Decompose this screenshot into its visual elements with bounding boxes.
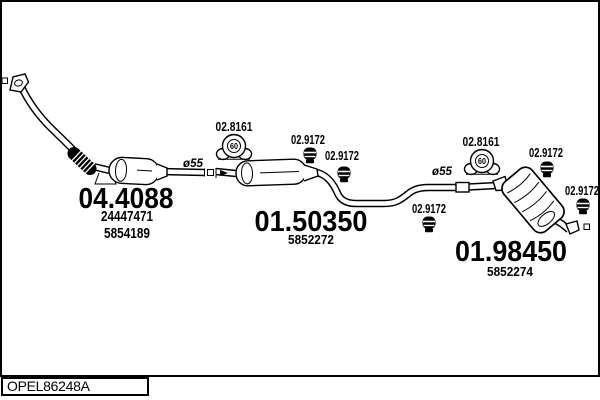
mount-number-label: 02.8161 <box>216 120 253 134</box>
catalytic-converter <box>108 157 159 186</box>
clamp-icon <box>423 217 436 233</box>
mount-size-label: 60 <box>230 142 238 151</box>
front-pipe <box>21 86 116 172</box>
clamp-number-label: 02.9172 <box>565 184 599 198</box>
clamp-icon <box>541 162 554 178</box>
clamp-icon <box>577 199 590 215</box>
clamp-number-label: 02.9172 <box>291 133 325 147</box>
pipe-diameter-label: ø55 <box>183 158 204 170</box>
flex-coupling <box>72 150 95 173</box>
pipe-diameter-label: ø55 <box>432 166 453 178</box>
clamp-number-label: 02.9172 <box>412 202 446 216</box>
clamp-icon <box>338 167 351 183</box>
exhaust-diagram-page: 60 60 02.8161 0 <box>0 0 600 400</box>
drawing-code: OPEL86248A <box>7 378 90 394</box>
drawing-code-box: OPEL86248A <box>1 377 149 396</box>
middle-silencer-body <box>236 159 307 186</box>
mount-size-label: 60 <box>478 157 486 166</box>
front-pipe-oe-number-2: 5854189 <box>104 225 150 242</box>
clamp-number-label: 02.9172 <box>325 149 359 163</box>
clamp-icon <box>304 148 317 164</box>
pipe-sleeve-joint <box>456 183 469 193</box>
mount-number-label: 02.8161 <box>463 135 500 149</box>
rubber-mount-icon: 60 <box>217 135 252 160</box>
rear-silencer-body <box>498 164 567 237</box>
exhaust-diagram: 60 60 02.8161 0 <box>0 0 600 400</box>
front-pipe-oe-number-1: 24447471 <box>101 208 153 225</box>
rear-silencer-oe-number: 5852274 <box>487 264 534 279</box>
clamp-number-label: 02.9172 <box>529 146 563 160</box>
rubber-mount-icon: 60 <box>465 150 500 175</box>
middle-silencer-outlet-cone <box>304 165 318 181</box>
middle-silencer-oe-number: 5852272 <box>288 232 334 247</box>
